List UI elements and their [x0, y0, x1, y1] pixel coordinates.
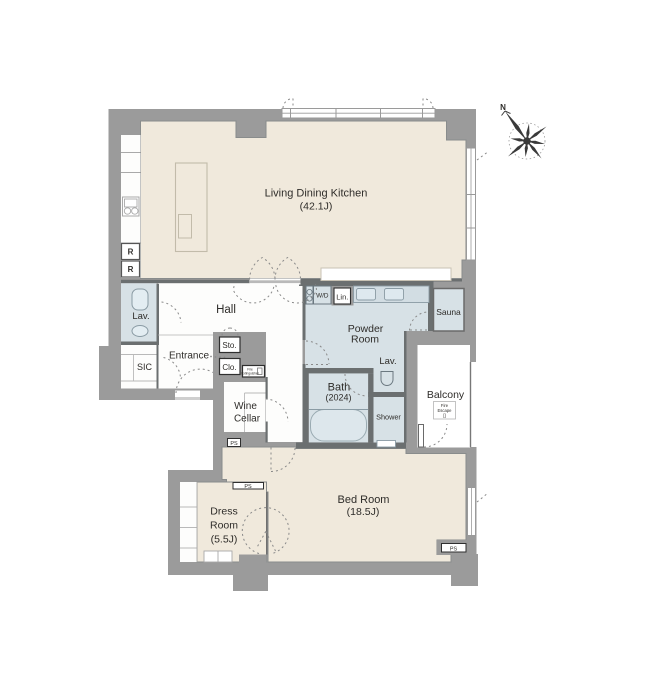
svg-text:SIC: SIC — [137, 362, 153, 372]
svg-text:PS: PS — [450, 547, 458, 553]
svg-text:PS: PS — [230, 441, 238, 447]
svg-text:Extinguisher: Extinguisher — [241, 372, 259, 376]
svg-text:Room: Room — [210, 520, 238, 532]
svg-text:Cellar: Cellar — [234, 414, 261, 425]
svg-text:Living Dining Kitchen: Living Dining Kitchen — [265, 188, 368, 200]
svg-text:(42.1J): (42.1J) — [300, 201, 333, 213]
svg-text:W/D: W/D — [316, 293, 329, 300]
svg-text:Hall: Hall — [216, 304, 236, 316]
svg-text:Balcony: Balcony — [427, 389, 465, 401]
svg-text:[]: [] — [443, 413, 445, 418]
svg-text:Lav.: Lav. — [132, 311, 149, 322]
svg-text:Lav.: Lav. — [379, 356, 396, 367]
svg-text:(2024): (2024) — [325, 393, 351, 403]
svg-text:Sto.: Sto. — [222, 341, 236, 350]
svg-text:PS: PS — [244, 484, 252, 490]
svg-text:R: R — [128, 248, 134, 257]
svg-text:Room: Room — [351, 334, 379, 346]
svg-text:(5.5J): (5.5J) — [211, 534, 238, 546]
svg-text:R: R — [128, 265, 134, 274]
svg-text:Dress: Dress — [210, 506, 237, 518]
svg-text:Wine: Wine — [234, 401, 257, 412]
svg-text:Lin.: Lin. — [336, 293, 348, 302]
svg-text:(18.5J): (18.5J) — [347, 506, 380, 518]
svg-text:Shower: Shower — [376, 413, 401, 422]
svg-text:N: N — [500, 103, 506, 112]
svg-text:Sauna: Sauna — [436, 307, 461, 317]
svg-text:Entrance: Entrance — [169, 351, 209, 362]
svg-text:Clo.: Clo. — [222, 363, 236, 372]
svg-text:Bed Room: Bed Room — [338, 494, 390, 506]
